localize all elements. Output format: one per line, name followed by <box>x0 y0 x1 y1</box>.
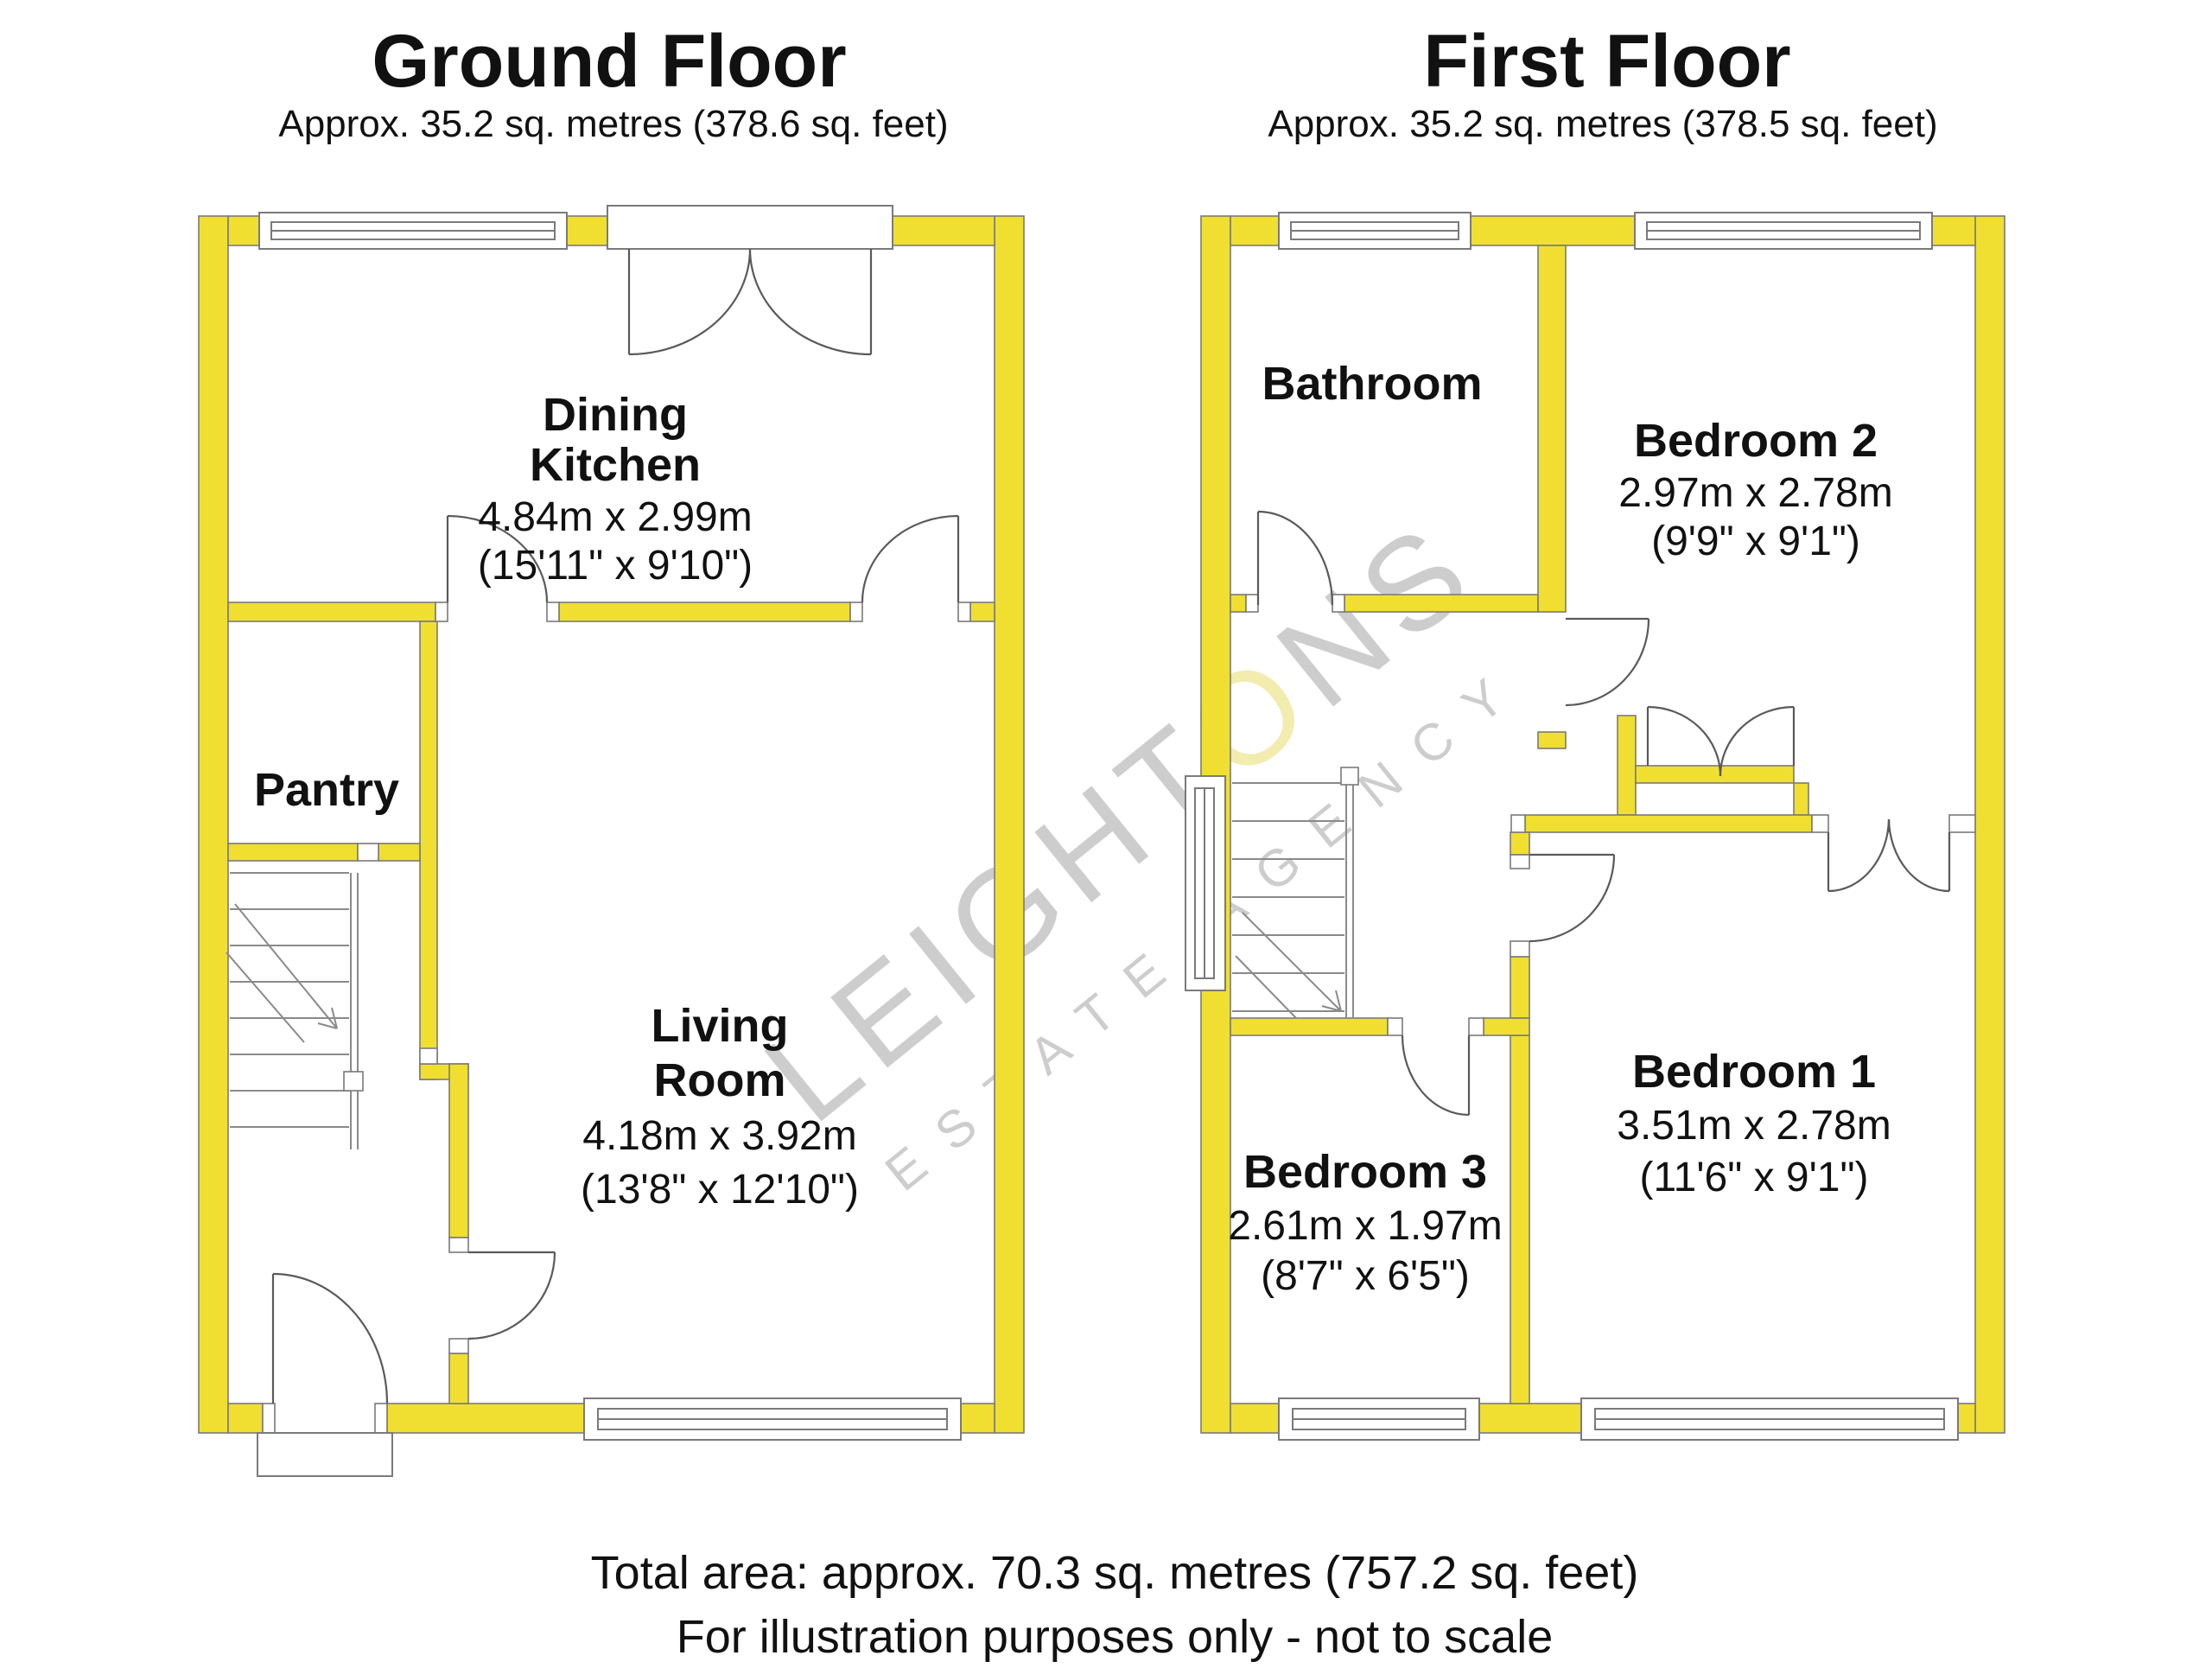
door-post <box>358 844 378 861</box>
stair-newel-post <box>1341 767 1358 785</box>
door-post <box>1510 941 1529 957</box>
living-room-imperial: (13'8" x 12'10") <box>581 1167 859 1213</box>
wall-closet-left <box>1618 716 1636 815</box>
door-post <box>263 1404 275 1433</box>
bedroom2-label: Bedroom 2 <box>1634 415 1878 467</box>
dining-kitchen-label: Kitchen <box>530 439 701 491</box>
wall-bedroom2-left <box>1538 732 1566 748</box>
wall-closet-top <box>1636 766 1794 783</box>
french-door-recess <box>607 206 893 249</box>
door-post <box>449 1238 468 1252</box>
door-post <box>1246 595 1258 612</box>
wall-pantry-right <box>420 621 437 1079</box>
bedroom3-door <box>1402 1035 1469 1115</box>
living-room-metric: 4.18m x 3.92m <box>582 1113 856 1159</box>
wall-kitchen-divider <box>559 602 850 621</box>
bedroom1-door <box>1529 855 1614 941</box>
living-room-label: Room <box>654 1054 786 1106</box>
bedroom1-window <box>1581 1398 1958 1440</box>
wall-hall-living <box>449 1353 468 1404</box>
wall-kitchen-divider <box>970 602 995 621</box>
wall-bedroom3-top <box>1484 1018 1529 1035</box>
pantry-label: Pantry <box>254 764 399 816</box>
door-post <box>1812 815 1828 832</box>
living-room-label: Living <box>652 1000 789 1052</box>
door-post <box>1388 1018 1402 1035</box>
ground-floor-title: Ground Floor <box>372 20 846 103</box>
stair-newel-post <box>344 1072 363 1091</box>
living-room-door <box>468 1252 555 1339</box>
wall-exterior-right <box>1975 216 2005 1433</box>
ground-floor-plan: Ground Floor Approx. 35.2 sq. metres (37… <box>199 20 1024 1476</box>
stair-break-line <box>226 952 304 1042</box>
stair-break-line <box>1236 956 1296 1018</box>
bathroom-window <box>1279 213 1471 249</box>
bedroom1-double-doors <box>1828 819 1949 891</box>
first-floor-subtitle: Approx. 35.2 sq. metres (378.5 sq. feet) <box>1268 103 1937 145</box>
wall-bedroom1-left <box>1510 1035 1529 1404</box>
stair-break-line <box>235 904 337 1028</box>
bedroom2-metric: 2.97m x 2.78m <box>1618 470 1892 516</box>
bathroom-label: Bathroom <box>1262 358 1483 410</box>
dining-kitchen-label: Dining <box>543 389 688 441</box>
door-post <box>1511 815 1525 832</box>
door-post <box>1469 1018 1484 1035</box>
wall-exterior-right <box>995 216 1024 1433</box>
wall-bedroom1-left <box>1510 957 1529 1018</box>
bedroom2-door <box>1566 619 1649 705</box>
wall-bathroom-bottom <box>1344 595 1538 612</box>
door-post <box>1332 595 1344 612</box>
wall-bathroom-right <box>1538 245 1566 612</box>
wall-pantry-bottom <box>378 844 420 861</box>
landing-window <box>1185 776 1225 990</box>
entrance-door <box>273 1274 387 1404</box>
first-floor-plan: First Floor Approx. 35.2 sq. metres (378… <box>1185 20 2005 1440</box>
door-post <box>435 602 448 621</box>
door-post <box>958 602 970 621</box>
bathroom-door <box>1258 512 1332 605</box>
wall-exterior-bottom <box>228 1404 263 1433</box>
total-area-text: Total area: approx. 70.3 sq. metres (757… <box>591 1547 1639 1599</box>
wall-bedroom1-top <box>1525 815 1812 832</box>
bedroom2-imperial: (9'9" x 9'1") <box>1651 519 1860 564</box>
wall-exterior-left <box>199 216 228 1433</box>
wall-hall-living <box>449 1064 468 1238</box>
living-room-window <box>584 1398 961 1440</box>
door-post <box>449 1339 468 1353</box>
kitchen-door-right <box>862 516 958 602</box>
staircase-first <box>1232 767 1358 1018</box>
door-post <box>1510 855 1529 869</box>
first-floor-title: First Floor <box>1423 20 1790 103</box>
dining-kitchen-imperial: (15'11" x 9'10") <box>478 543 753 589</box>
bedroom1-imperial: (11'6" x 9'1") <box>1640 1155 1869 1200</box>
wall-pantry-bottom <box>228 844 358 861</box>
dining-kitchen-metric: 4.84m x 2.99m <box>478 494 752 540</box>
kitchen-window <box>259 213 567 249</box>
wall-bedroom1-left <box>1510 832 1529 855</box>
wall-bedroom3-top <box>1230 1018 1388 1035</box>
staircase-ground <box>226 873 363 1149</box>
door-post <box>375 1404 387 1433</box>
footer: Total area: approx. 70.3 sq. metres (757… <box>591 1547 1639 1663</box>
bedroom3-imperial: (8'7" x 6'5") <box>1261 1253 1470 1299</box>
bedroom1-metric: 3.51m x 2.78m <box>1617 1103 1891 1149</box>
door-post <box>850 602 862 621</box>
disclaimer-text: For illustration purposes only - not to … <box>677 1611 1553 1663</box>
french-doors <box>629 249 871 354</box>
door-post <box>547 602 559 621</box>
bedroom3-metric: 2.61m x 1.97m <box>1228 1203 1502 1249</box>
bedroom2-window <box>1635 213 1932 249</box>
bedroom3-window <box>1279 1398 1479 1440</box>
wall-closet-right <box>1794 783 1808 815</box>
wall-bathroom-bottom <box>1230 595 1246 612</box>
bedroom3-label: Bedroom 3 <box>1243 1146 1487 1198</box>
entrance-step <box>257 1433 392 1476</box>
stair-break-line <box>1243 913 1341 1011</box>
door-post <box>420 1048 437 1064</box>
wall-kitchen-divider <box>228 602 435 621</box>
floorplan-canvas: Ground Floor Approx. 35.2 sq. metres (37… <box>0 0 2212 1668</box>
door-post <box>1949 815 1975 832</box>
bedroom1-label: Bedroom 1 <box>1632 1046 1876 1098</box>
ground-floor-subtitle: Approx. 35.2 sq. metres (378.6 sq. feet) <box>278 103 948 145</box>
